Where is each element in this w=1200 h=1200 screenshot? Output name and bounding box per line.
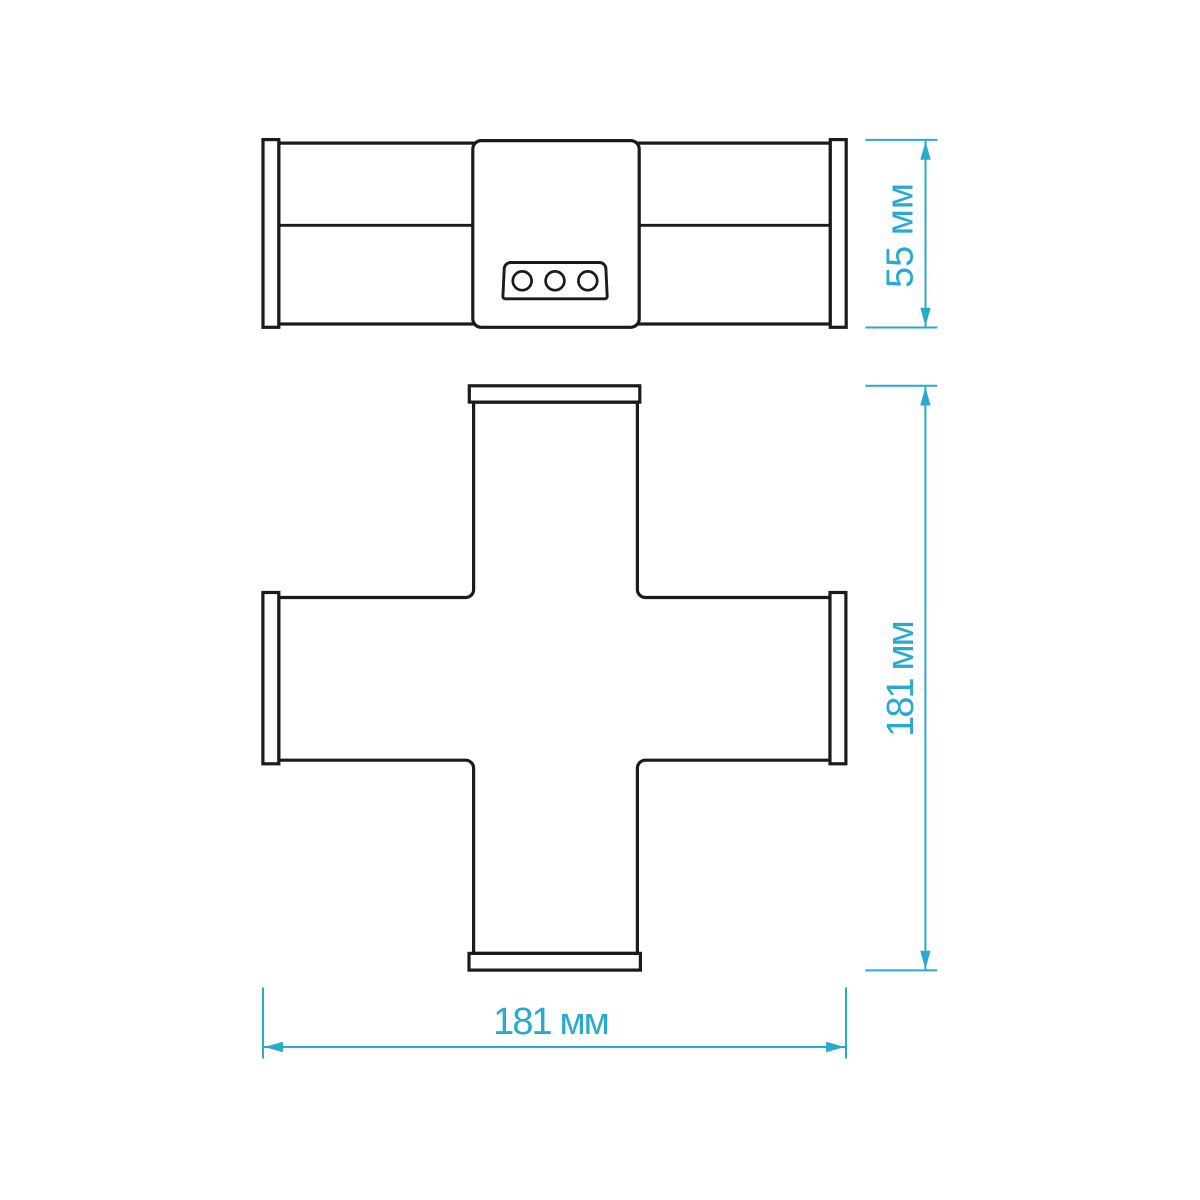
svg-text:181 мм: 181 мм (880, 622, 922, 737)
svg-text:55 мм: 55 мм (880, 183, 922, 288)
svg-text:181 мм: 181 мм (493, 1001, 608, 1043)
